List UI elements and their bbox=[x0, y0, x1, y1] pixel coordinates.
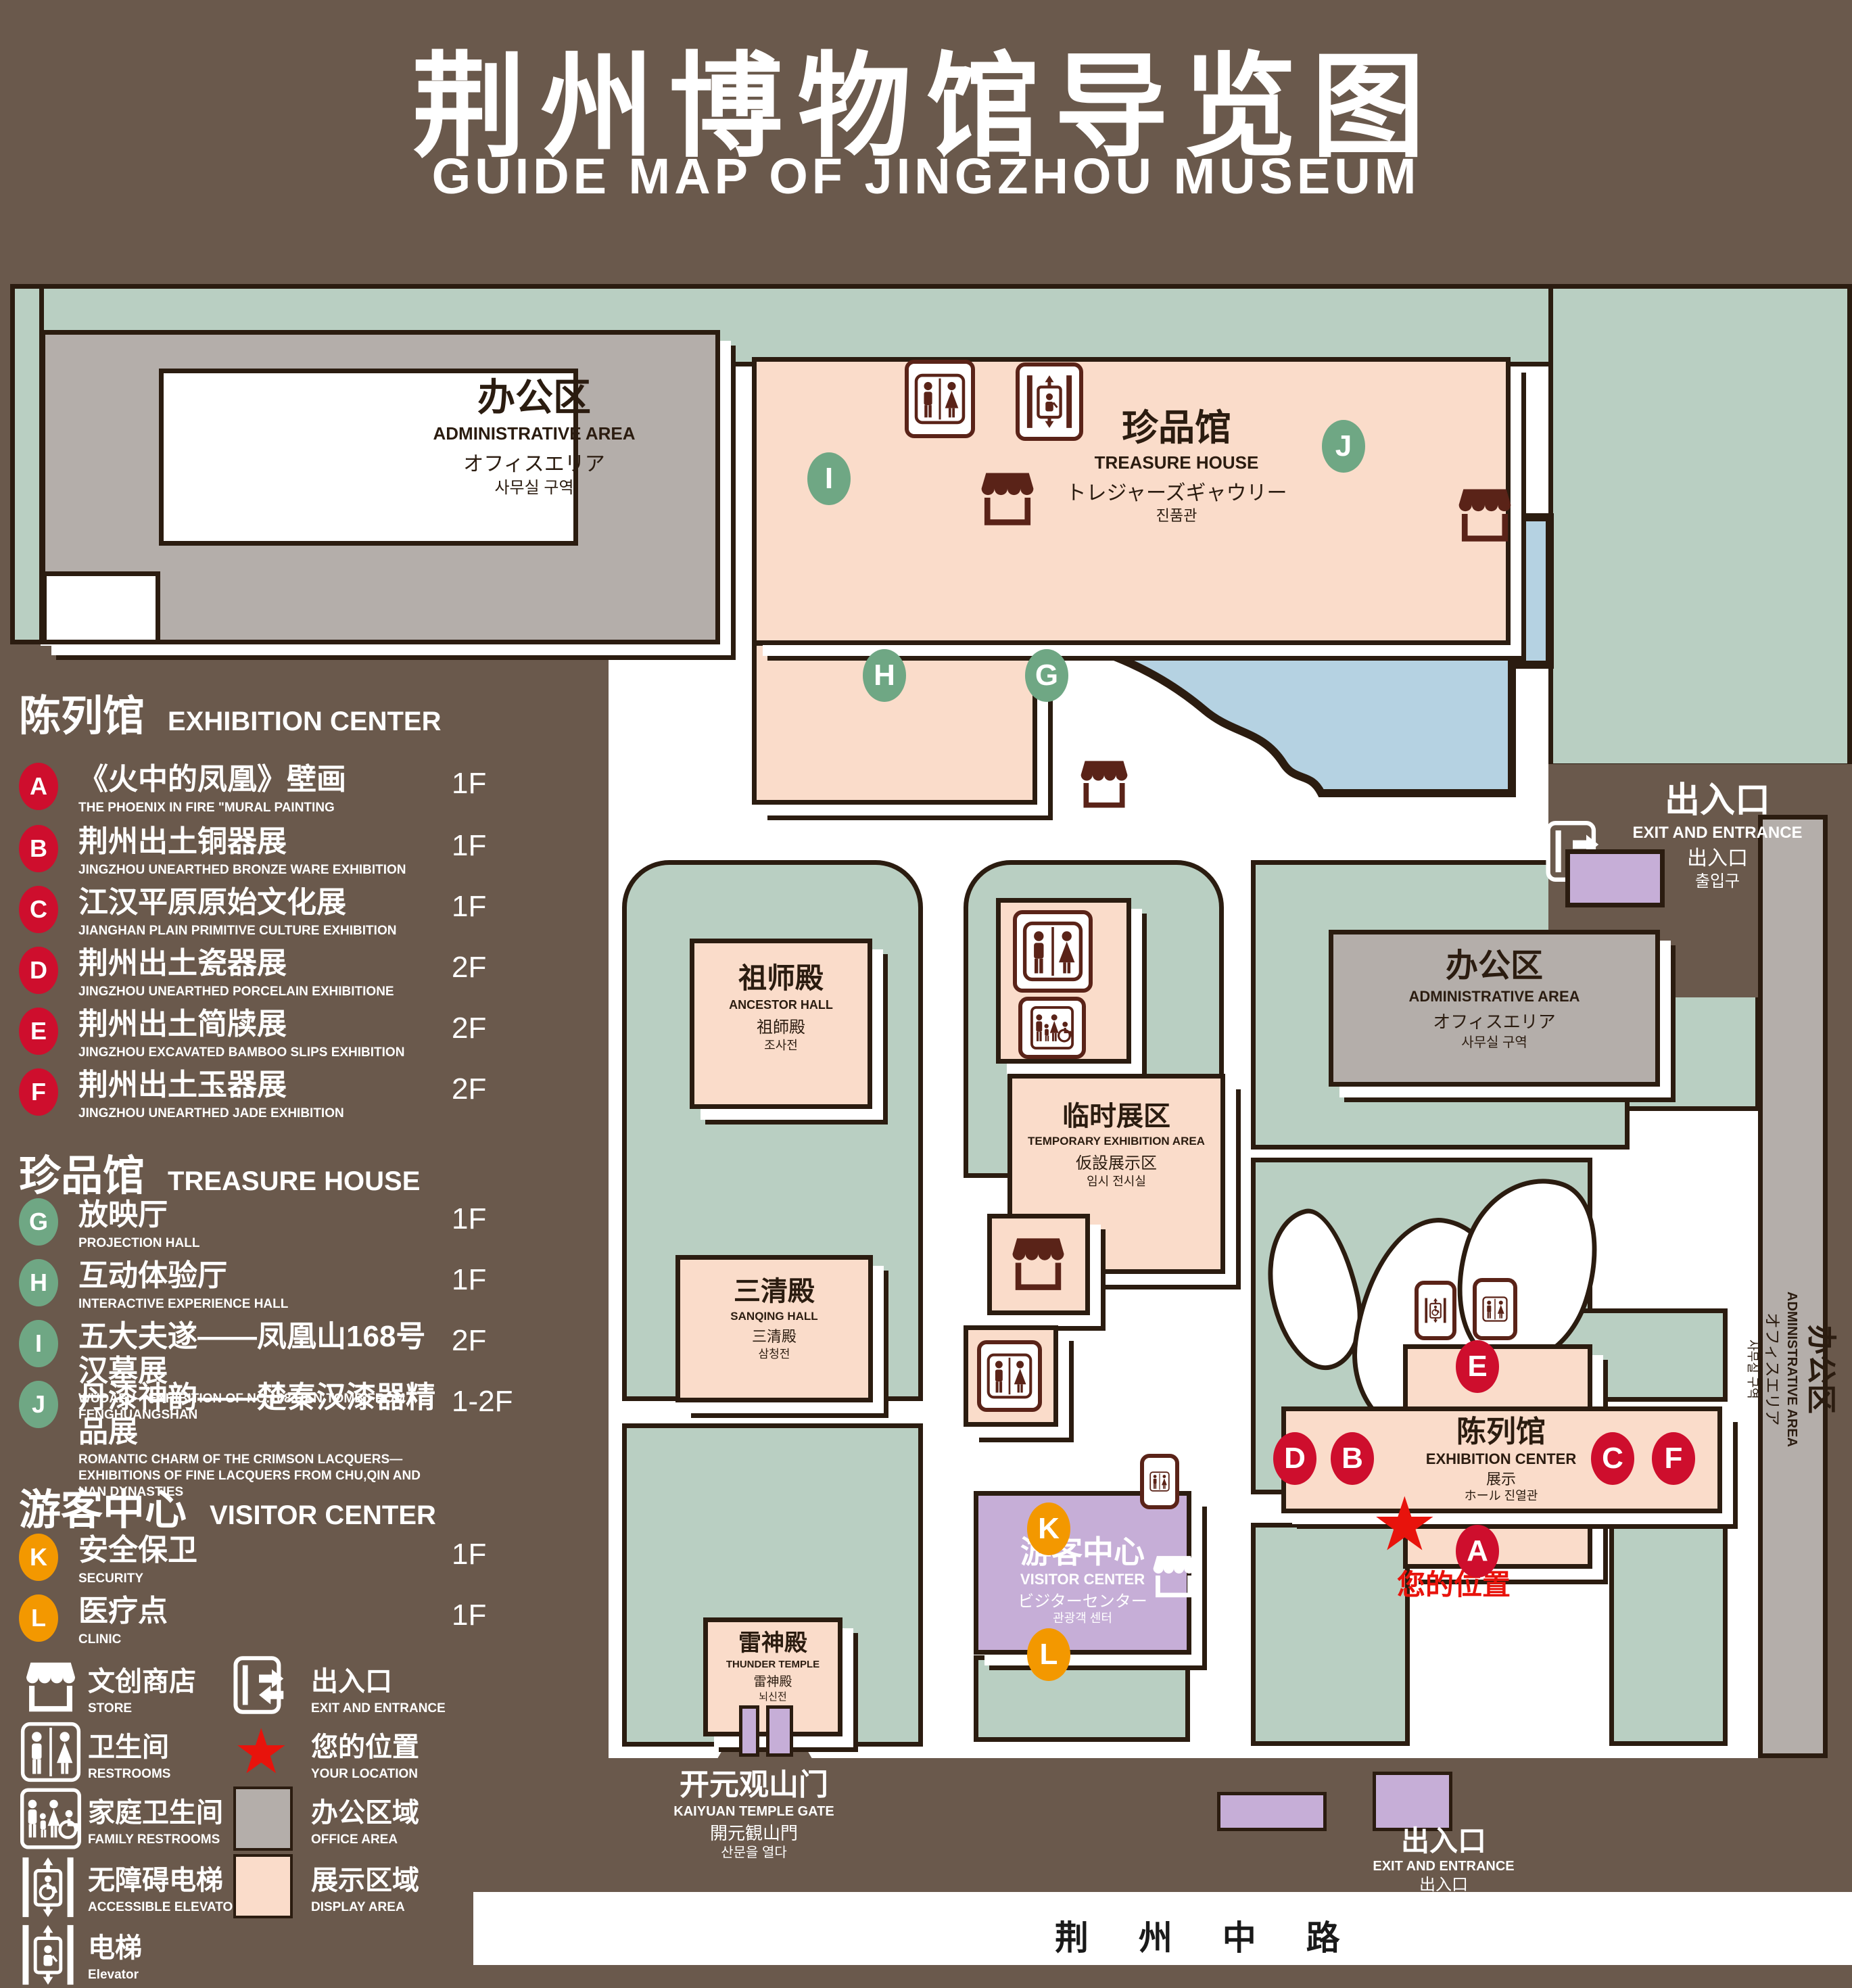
map-badge-a: A bbox=[1456, 1525, 1499, 1578]
accessible-elevator-icon bbox=[20, 1854, 76, 1920]
gate-pillar-east bbox=[766, 1705, 793, 1757]
family-restroom-icon bbox=[20, 1786, 81, 1851]
store-icon bbox=[1075, 754, 1133, 812]
legend-symbol-store: 文创商店STORE bbox=[20, 1655, 243, 1720]
admin-e-label: 办公区 ADMINISTRATIVE AREA オフィスエリア 사무실 구역 bbox=[1359, 945, 1630, 1051]
badge-j: J bbox=[19, 1381, 58, 1428]
restroom-icon bbox=[1013, 910, 1093, 993]
badge-b: B bbox=[19, 825, 58, 872]
lawn-west-strip bbox=[10, 284, 44, 644]
legend-item-f: F 荆州出土玉器展JINGZHOU UNEARTHED JADE EXHIBIT… bbox=[19, 1068, 519, 1121]
map-badge-f: F bbox=[1652, 1432, 1695, 1485]
lawn-visitor-south bbox=[974, 1655, 1190, 1742]
badge-d: D bbox=[19, 947, 58, 994]
exit-icon bbox=[233, 1655, 298, 1715]
map-badge-b: B bbox=[1331, 1432, 1374, 1485]
accessible-elevator-icon bbox=[1415, 1281, 1456, 1340]
badge-g: G bbox=[19, 1198, 58, 1246]
page-subtitle: GUIDE MAP OF JINGZHOU MUSEUM bbox=[0, 147, 1852, 205]
map-badge-k: K bbox=[1027, 1502, 1070, 1555]
badge-c: C bbox=[19, 886, 58, 933]
legend-item-a: A 《火中的凤凰》壁画THE PHOENIX IN FIRE "MURAL PA… bbox=[19, 763, 519, 815]
legend-section-visitor: 游客中心VISITOR CENTER bbox=[19, 1475, 533, 1536]
elevator-icon bbox=[20, 1922, 76, 1988]
badge-l: L bbox=[19, 1594, 58, 1642]
badge-i: I bbox=[19, 1320, 58, 1367]
exit-ne-building bbox=[1565, 849, 1665, 907]
map-badge-h: H bbox=[863, 649, 906, 702]
badge-h: H bbox=[19, 1259, 58, 1306]
restroom-icon bbox=[977, 1340, 1042, 1412]
exit-s-building-west bbox=[1217, 1792, 1327, 1831]
badge-e: E bbox=[19, 1008, 58, 1055]
map-badge-l: L bbox=[1027, 1628, 1070, 1681]
map-badge-i: I bbox=[807, 452, 851, 505]
gate-pillar-west bbox=[739, 1705, 759, 1757]
store-icon bbox=[1452, 481, 1517, 546]
map-badge-g: G bbox=[1025, 649, 1068, 702]
admin-nw-notch bbox=[42, 571, 160, 644]
store-icon bbox=[1148, 1550, 1200, 1601]
map-badge-j: J bbox=[1322, 420, 1365, 473]
store-icon bbox=[20, 1655, 81, 1716]
legend-symbol-family-restrooms: 家庭卫生间FAMILY RESTROOMS bbox=[20, 1786, 243, 1851]
map-badge-c: C bbox=[1591, 1432, 1634, 1485]
legend-item-h: H 互动体验厅INTERACTIVE EXPERIENCE HALL 1F bbox=[19, 1259, 519, 1312]
thunder-label: 雷神殿 THUNDER TEMPLE 雷神殿 뇌신전 bbox=[703, 1628, 842, 1704]
legend-item-d: D 荆州出土瓷器展JINGZHOU UNEARTHED PORCELAIN EX… bbox=[19, 947, 519, 999]
store-icon bbox=[975, 465, 1040, 530]
lawn-exh-se bbox=[1609, 1501, 1728, 1746]
legend-symbol-exit: 出入口EXIT AND ENTRANCE bbox=[233, 1655, 477, 1720]
legend-symbol-restrooms: 卫生间RESTROOMS bbox=[20, 1721, 243, 1785]
legend-symbol-elevator: 电梯Elevator bbox=[20, 1922, 243, 1986]
building-exhibition-top bbox=[1403, 1344, 1592, 1412]
lawn-northeast bbox=[1548, 284, 1852, 768]
legend-item-b: B 荆州出土铜器展JINGZHOU UNEARTHED BRONZE WARE … bbox=[19, 825, 519, 878]
restroom-icon bbox=[1473, 1278, 1517, 1340]
legend-symbol-location: ★ 您的位置YOUR LOCATION bbox=[233, 1721, 477, 1785]
exit-s-label: 出入口 EXIT AND ENTRANCE 出入口 출입구 bbox=[1342, 1824, 1545, 1912]
legend-item-k: K 安全保卫SECURITY 1F bbox=[19, 1534, 519, 1586]
legend-section-exhibition: 陈列馆EXHIBITION CENTER bbox=[19, 682, 533, 742]
temporary-label: 临时展区 TEMPORARY EXHIBITION AREA 仮設展示区 임시 … bbox=[1007, 1099, 1225, 1190]
restroom-icon bbox=[20, 1721, 81, 1783]
office-area-swatch bbox=[233, 1786, 293, 1851]
legend-symbol-accessible-elevator: 无障碍电梯ACCESSIBLE ELEVATOR bbox=[20, 1854, 243, 1918]
legend-section-treasure: 珍品馆TREASURE HOUSE bbox=[19, 1141, 533, 1202]
your-location-star-icon: ★ bbox=[233, 1721, 289, 1783]
legend-item-c: C 江汉平原原始文化展JIANGHAN PLAIN PRIMITIVE CULT… bbox=[19, 886, 519, 939]
ancestor-label: 祖师殿 ANCESTOR HALL 祖師殿 조사전 bbox=[690, 960, 872, 1054]
your-location-label: 您的位置 bbox=[1352, 1562, 1555, 1603]
badge-a: A bbox=[19, 763, 58, 810]
road-south-edge bbox=[473, 1965, 1852, 1980]
admin-nw-label: 办公区 ADMINISTRATIVE AREA オフィスエリア 사무실 구역 bbox=[379, 373, 690, 498]
legend-symbol-office-area: 办公区域OFFICE AREA bbox=[233, 1786, 477, 1851]
road-label: 荆 州 中 路 bbox=[1055, 1911, 1528, 1960]
map-badge-d: D bbox=[1273, 1432, 1316, 1485]
legend-item-l: L 医疗点CLINIC 1F bbox=[19, 1594, 519, 1647]
legend-item-g: G 放映厅PROJECTION HALL 1F bbox=[19, 1198, 519, 1251]
restroom-icon bbox=[905, 360, 975, 438]
elevator-icon bbox=[1016, 362, 1083, 441]
legend-symbol-display-area: 展示区域DISPLAY AREA bbox=[233, 1854, 477, 1918]
your-location-star-icon: ★ bbox=[1371, 1488, 1438, 1562]
display-area-swatch bbox=[233, 1854, 293, 1918]
restroom-icon bbox=[1140, 1454, 1179, 1509]
family-restroom-icon bbox=[1018, 997, 1086, 1059]
legend-item-e: E 荆州出土简牍展JINGZHOU EXCAVATED BAMBOO SLIPS… bbox=[19, 1008, 519, 1060]
treasure-label: 珍品馆 TREASURE HOUSE トレジャーズギャウリー 진품관 bbox=[1045, 404, 1308, 526]
gate-label: 开元观山门 KAIYUAN TEMPLE GATE 開元観山門 산문을 열다 bbox=[632, 1766, 876, 1862]
badge-f: F bbox=[19, 1068, 58, 1116]
badge-k: K bbox=[19, 1534, 58, 1581]
store-icon bbox=[1006, 1231, 1070, 1295]
admin-strip-label: 办公区 ADMINISTRATIVE AREA オフィスエリア 사무실 구역 bbox=[1755, 1180, 1830, 1559]
map-badge-e: E bbox=[1456, 1340, 1499, 1393]
exit-s-building-east bbox=[1373, 1772, 1452, 1831]
sanqing-label: 三清殿 SANQING HALL 三清殿 삼청전 bbox=[675, 1274, 873, 1362]
